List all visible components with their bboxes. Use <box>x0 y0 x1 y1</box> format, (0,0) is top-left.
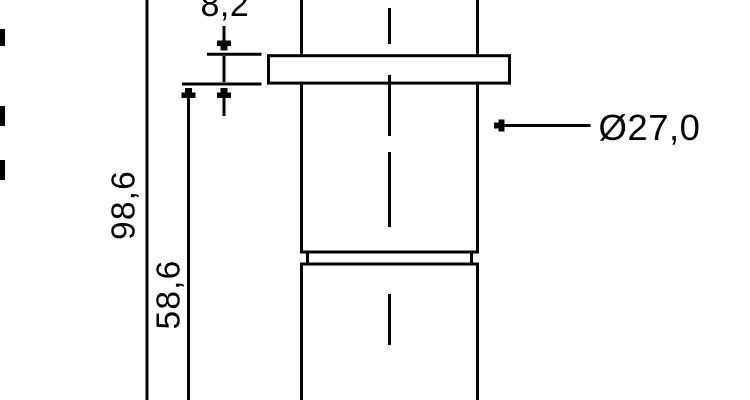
svg-text:8,2: 8,2 <box>201 0 250 24</box>
svg-text:98,6: 98,6 <box>106 170 143 240</box>
svg-text:Ø27,0: Ø27,0 <box>599 107 701 148</box>
svg-text:58,6: 58,6 <box>151 259 188 329</box>
